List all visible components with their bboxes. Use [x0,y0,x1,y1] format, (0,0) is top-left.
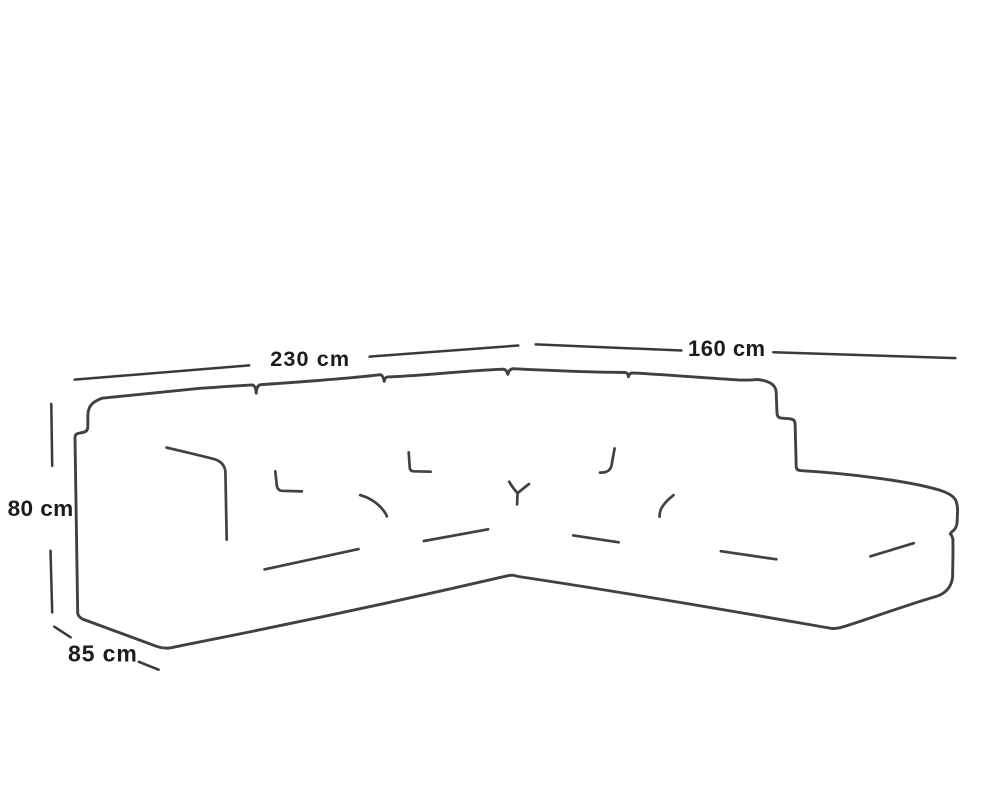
svg-text:230 cm: 230 cm [270,346,350,371]
svg-text:160 cm: 160 cm [688,336,766,361]
svg-text:80 cm: 80 cm [8,496,74,521]
svg-text:85 cm: 85 cm [68,640,138,666]
